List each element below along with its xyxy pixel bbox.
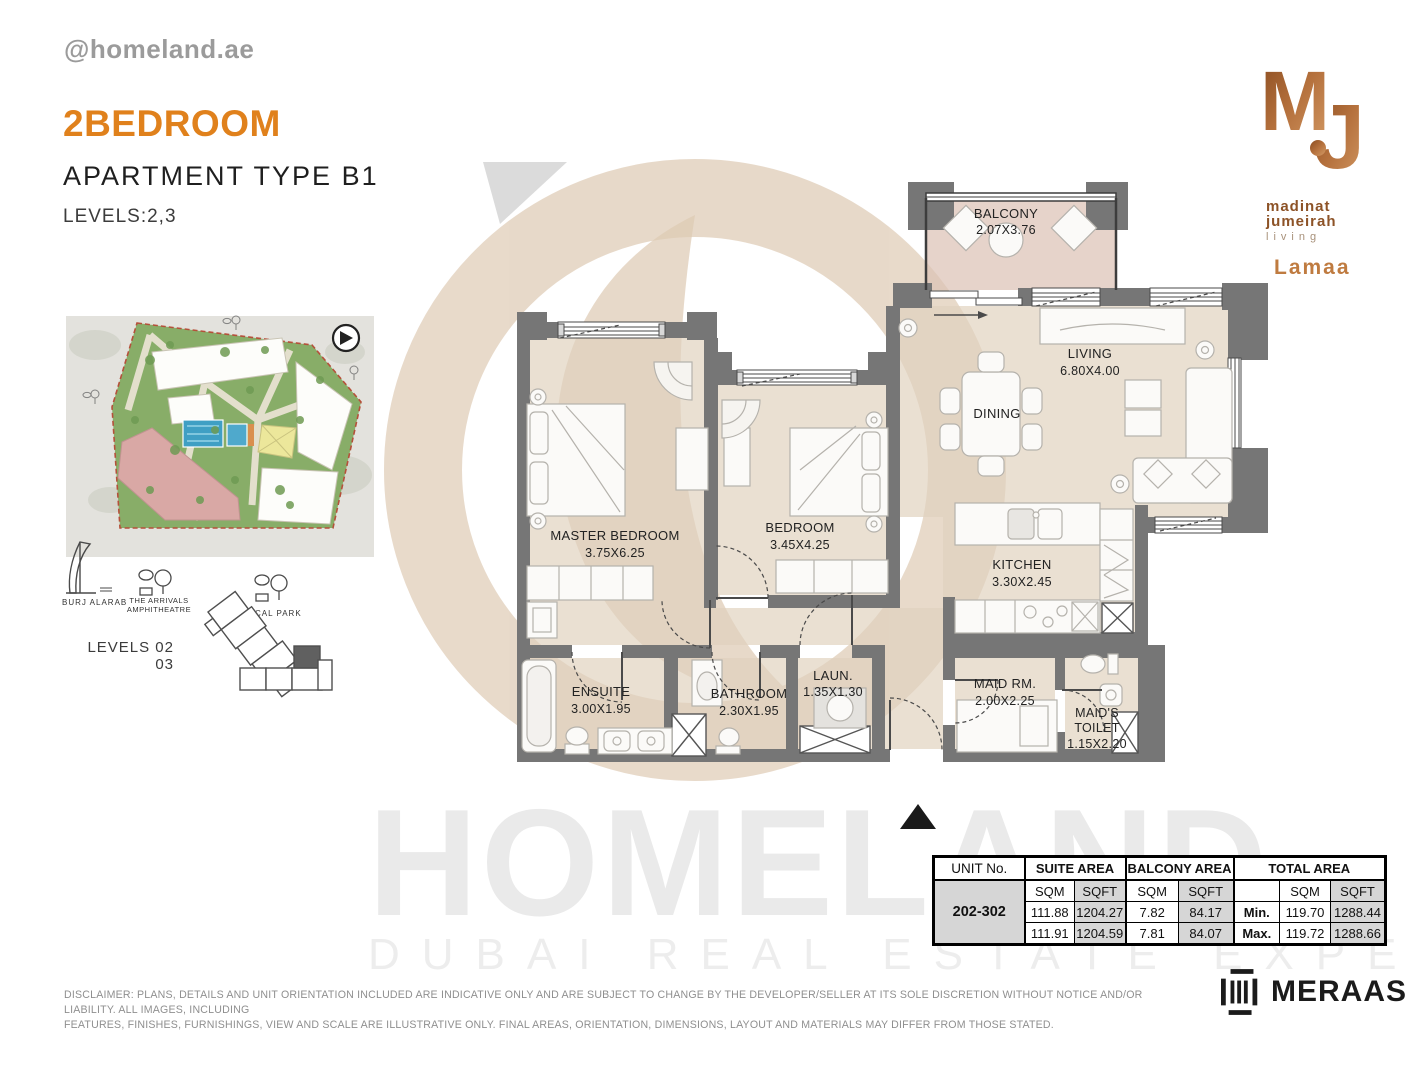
amphitheatre-tree-icon <box>139 570 171 595</box>
maid-toilet-label-2: TOILET <box>1074 721 1119 735</box>
brand-line-2: jumeirah <box>1266 214 1372 229</box>
burj-label: BURJ ALARAB <box>62 598 127 607</box>
min-total-sqft: 1288.44 <box>1331 902 1386 923</box>
arrivals-label-2: AMPHITHEATRE <box>127 605 191 614</box>
col-suite-area: SUITE AREA <box>1025 857 1126 881</box>
area-table: UNIT No. SUITE AREA BALCONY AREA TOTAL A… <box>932 855 1387 946</box>
bedroom-dims: 3.45X4.25 <box>770 538 830 552</box>
bedroom-label: BEDROOM <box>765 520 834 535</box>
max-balcony-sqft: 84.07 <box>1178 923 1233 945</box>
keyplan-levels-2: 03 <box>155 656 174 673</box>
meraas-icon <box>1221 968 1263 1016</box>
kitchen-dims: 3.30X2.45 <box>992 575 1052 589</box>
balcony-dims: 2.07X3.76 <box>976 223 1036 237</box>
maid-room-label: MAID RM. <box>974 676 1036 691</box>
ensuite-dims: 3.00X1.95 <box>571 702 631 716</box>
local-park-tree-icon <box>255 575 287 601</box>
disclaimer: DISCLAIMER: PLANS, DETAILS AND UNIT ORIE… <box>64 988 1159 1033</box>
disclaimer-line-2: FEATURES, FINISHES, FURNISHINGS, VIEW AN… <box>64 1018 1159 1033</box>
col-unit-no: UNIT No. <box>934 857 1025 881</box>
key-plan <box>200 587 332 708</box>
floorplan-flyer-page: { "header": { "handle": "@homeland.ae", … <box>0 0 1415 1080</box>
master-bedroom-dims: 3.75X6.25 <box>585 546 645 560</box>
brand-line-3: living <box>1266 230 1372 245</box>
max-suite-sqft: 1204.59 <box>1075 923 1126 945</box>
balcony-label: BALCONY <box>974 206 1038 221</box>
min-balcony-sqm: 7.82 <box>1126 902 1179 923</box>
project-name: Lamaa <box>1252 256 1372 280</box>
laundry-dims: 1.35X1.30 <box>803 685 863 699</box>
max-balcony-sqm: 7.81 <box>1126 923 1179 945</box>
maid-room-dims: 2.00X2.25 <box>975 694 1035 708</box>
levels-text: LEVELS:2,3 <box>63 206 177 228</box>
balcony-sqm-header: SQM <box>1126 880 1179 902</box>
min-suite-sqft: 1204.27 <box>1075 902 1126 923</box>
laundry-label: LAUN. <box>813 668 853 683</box>
maid-toilet-dims: 1.15X2.20 <box>1067 737 1127 751</box>
suite-sqm-header: SQM <box>1025 880 1075 902</box>
meraas-logo: MERAAS <box>1221 968 1407 1016</box>
brand-handle: @homeland.ae <box>64 34 254 65</box>
max-total-sqm: 119.72 <box>1280 923 1331 945</box>
apartment-type: APARTMENT TYPE B1 <box>63 161 379 192</box>
mj-letter-j: J <box>1314 86 1364 188</box>
keyplan-highlighted-unit <box>294 646 320 668</box>
mj-logo: M J madinat jumeirah living Lamaa <box>1252 50 1372 280</box>
dining-label: DINING <box>973 406 1020 421</box>
north-arrow-icon <box>900 804 936 829</box>
ensuite-label: ENSUITE <box>572 684 630 699</box>
min-total-sqm: 119.70 <box>1280 902 1331 923</box>
page-title: 2BEDROOM <box>63 103 281 145</box>
living-label: LIVING <box>1068 346 1112 361</box>
col-balcony-area: BALCONY AREA <box>1126 857 1234 881</box>
min-suite-sqm: 111.88 <box>1025 902 1075 923</box>
meraas-wordmark: MERAAS <box>1271 975 1407 1009</box>
balcony-sqft-header: SQFT <box>1178 880 1233 902</box>
keyplan-levels-1: LEVELS 02 <box>87 639 174 656</box>
suite-sqft-header: SQFT <box>1075 880 1126 902</box>
bathroom-label: BATHROOM <box>711 686 788 701</box>
min-balcony-sqft: 84.17 <box>1178 902 1233 923</box>
bathroom-dims: 2.30X1.95 <box>719 704 779 718</box>
map-north-icon <box>333 325 359 351</box>
max-label: Max. <box>1234 923 1280 945</box>
disclaimer-line-1: DISCLAIMER: PLANS, DETAILS AND UNIT ORIE… <box>64 988 1159 1018</box>
total-sqft-header: SQFT <box>1331 880 1386 902</box>
site-plan-map <box>66 316 374 557</box>
living-dims: 6.80X4.00 <box>1060 364 1120 378</box>
max-suite-sqm: 111.91 <box>1025 923 1075 945</box>
min-label: Min. <box>1234 902 1280 923</box>
brand-line-1: madinat <box>1266 199 1372 214</box>
master-bedroom-label: MASTER BEDROOM <box>550 528 679 543</box>
max-total-sqft: 1288.66 <box>1331 923 1386 945</box>
mj-monogram-icon: M J <box>1252 50 1364 190</box>
col-total-area: TOTAL AREA <box>1234 857 1386 881</box>
minmax-blank <box>1234 880 1280 902</box>
kitchen-label: KITCHEN <box>992 557 1051 572</box>
maid-toilet-label-1: MAID'S <box>1075 706 1119 720</box>
floor-plan: BALCONY 2.07X3.76 LIVING 6.80X4.00 DININ… <box>423 182 1268 762</box>
arrivals-label-1: THE ARRIVALS <box>129 596 188 605</box>
unit-number: 202-302 <box>934 880 1025 945</box>
total-sqm-header: SQM <box>1280 880 1331 902</box>
